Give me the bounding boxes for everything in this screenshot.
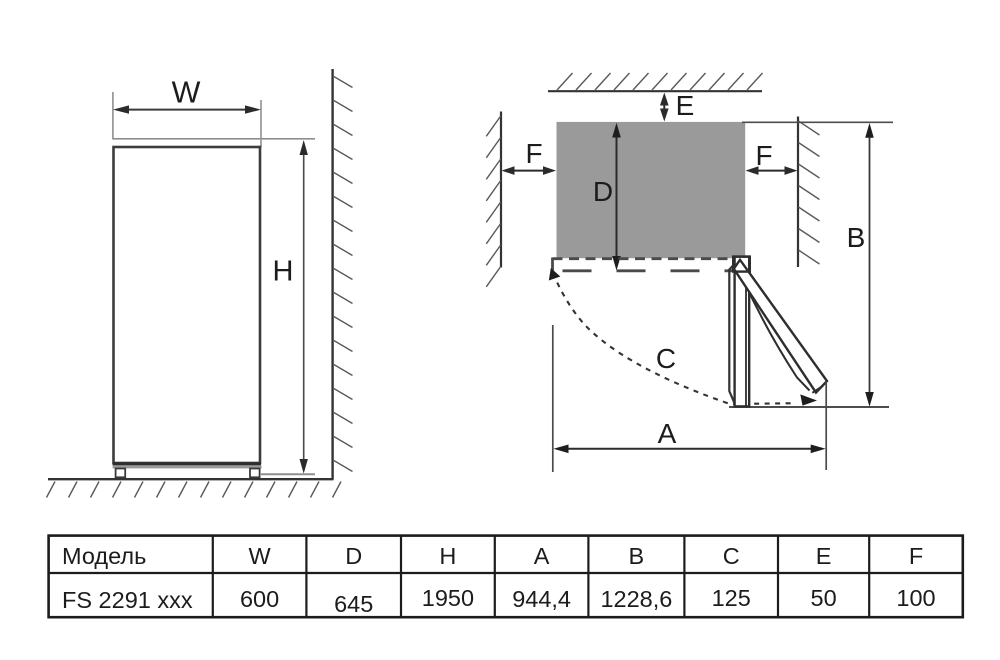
svg-text:A: A bbox=[658, 418, 677, 449]
svg-text:600: 600 bbox=[240, 586, 279, 612]
svg-text:F: F bbox=[755, 140, 772, 171]
svg-text:C: C bbox=[656, 343, 676, 374]
svg-text:F: F bbox=[525, 138, 542, 169]
svg-text:D: D bbox=[593, 176, 613, 207]
svg-text:W: W bbox=[249, 543, 272, 569]
svg-text:E: E bbox=[816, 543, 832, 569]
svg-text:D: D bbox=[345, 543, 362, 569]
svg-text:50: 50 bbox=[811, 585, 837, 611]
svg-text:1950: 1950 bbox=[422, 585, 474, 611]
svg-text:C: C bbox=[723, 543, 740, 569]
svg-text:F: F bbox=[909, 543, 923, 569]
svg-text:125: 125 bbox=[712, 585, 751, 611]
svg-text:B: B bbox=[629, 543, 645, 569]
svg-text:H: H bbox=[439, 543, 456, 569]
svg-text:100: 100 bbox=[896, 585, 935, 611]
svg-text:FS 2291 xxx: FS 2291 xxx bbox=[62, 587, 193, 613]
svg-text:A: A bbox=[534, 543, 550, 569]
svg-text:B: B bbox=[847, 222, 866, 253]
svg-text:H: H bbox=[273, 256, 294, 288]
svg-text:Модель: Модель bbox=[62, 543, 146, 569]
svg-text:W: W bbox=[172, 76, 201, 110]
svg-text:E: E bbox=[676, 90, 695, 121]
svg-text:645: 645 bbox=[334, 591, 373, 617]
svg-text:1228,6: 1228,6 bbox=[600, 586, 672, 612]
svg-text:944,4: 944,4 bbox=[512, 586, 571, 612]
